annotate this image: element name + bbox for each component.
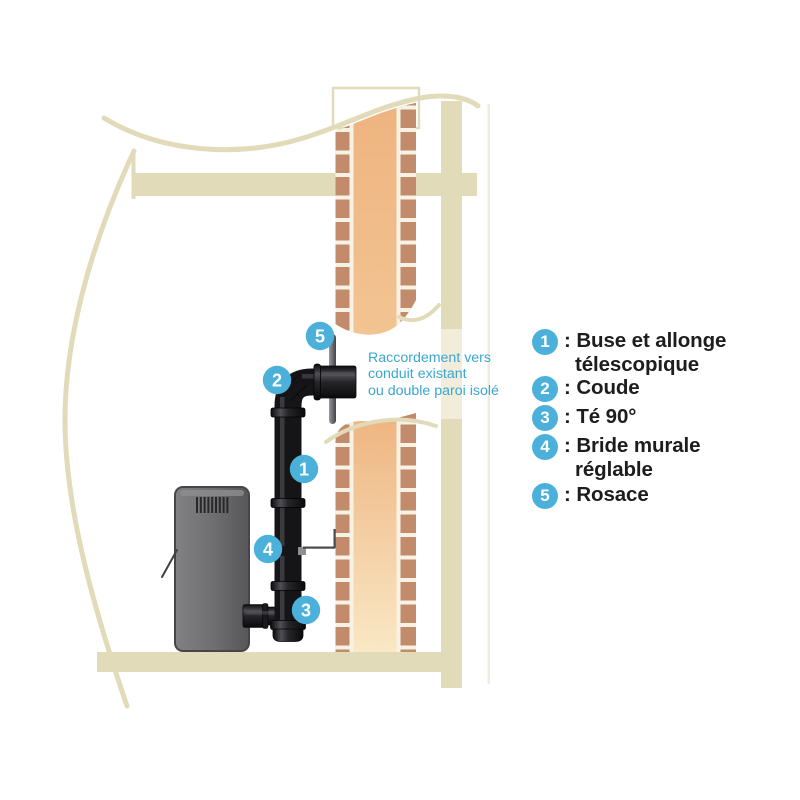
legend-item-buse: 1 : Buse et allonge télescopique xyxy=(532,329,726,377)
legend-label-line1: : Coude xyxy=(564,376,640,400)
legend-label-line1: : Bride murale xyxy=(564,434,700,458)
mortar-line xyxy=(397,95,401,335)
legend-label: : Té 90° xyxy=(564,405,636,429)
pellet-stove xyxy=(162,487,249,651)
legend-label-line1: : Rosace xyxy=(564,483,649,507)
annotation-text: Raccordement vers conduit existant ou do… xyxy=(368,350,518,399)
legend-item-coude: 2 : Coude xyxy=(532,376,640,402)
stove-branch-ring xyxy=(263,604,269,629)
mortar-rows xyxy=(336,95,350,335)
annotation-line-1: Raccordement vers xyxy=(368,350,518,366)
legend-label-line1: : Té 90° xyxy=(564,405,636,429)
left-wall-line xyxy=(65,151,134,706)
legend-label-line2: télescopique xyxy=(564,353,726,377)
bracket-rod xyxy=(303,547,335,549)
floor xyxy=(97,652,462,672)
mortar-line xyxy=(397,410,401,652)
callout-5-number: 5 xyxy=(315,326,325,346)
legend-item-rosace: 5 : Rosace xyxy=(532,483,649,509)
chimney-upper-section xyxy=(336,95,417,335)
telescopic-sleeve xyxy=(317,366,356,398)
pipe-collar xyxy=(271,582,305,591)
legend-badge-number: 4 xyxy=(540,437,549,457)
bracket-wall-pin xyxy=(334,529,336,548)
legend: 1 : Buse et allonge télescopique 2 : Cou… xyxy=(530,0,790,800)
mortar-line xyxy=(350,410,354,652)
callout-3-number: 3 xyxy=(301,600,311,620)
right-wall-band-top xyxy=(441,101,462,329)
callout-4-number: 4 xyxy=(263,539,273,559)
legend-badge-2: 2 xyxy=(532,376,558,402)
right-wall-band-bottom xyxy=(441,419,462,688)
pipe-collar xyxy=(271,408,305,417)
sleeve-ring xyxy=(314,364,321,400)
legend-label-line1: : Buse et allonge xyxy=(564,329,726,353)
legend-badge-3: 3 xyxy=(532,405,558,431)
legend-badge-5: 5 xyxy=(532,483,558,509)
installation-diagram-page: 1 2 3 4 5 Raccordement vers conduit exis… xyxy=(0,0,800,800)
mortar-rows xyxy=(401,95,417,335)
legend-label: : Buse et allonge télescopique xyxy=(564,329,726,377)
ceiling-beam xyxy=(133,173,477,196)
ceiling-line xyxy=(104,96,478,150)
mortar-rows xyxy=(336,410,350,652)
legend-item-te90: 3 : Té 90° xyxy=(532,405,636,431)
legend-badge-number: 1 xyxy=(540,332,549,352)
chimney-lower-section xyxy=(336,410,417,652)
legend-label: : Rosace xyxy=(564,483,649,507)
legend-label: : Bride murale réglable xyxy=(564,434,700,482)
annotation-line-2: conduit existant xyxy=(368,366,518,382)
legend-badge-1: 1 xyxy=(532,329,558,355)
legend-badge-number: 3 xyxy=(540,408,549,428)
legend-badge-4: 4 xyxy=(532,434,558,460)
legend-label: : Coude xyxy=(564,376,640,400)
sleeve-highlight xyxy=(322,372,354,376)
legend-label-line2: réglable xyxy=(564,458,700,482)
annotation-line-3: ou double paroi isolé xyxy=(368,383,518,399)
mortar-rows xyxy=(401,410,417,652)
tee-cap xyxy=(273,629,303,642)
stove-top-highlight xyxy=(180,490,244,496)
pipe-collar xyxy=(271,499,305,508)
callout-1-number: 1 xyxy=(299,459,309,479)
stove-vents xyxy=(196,497,228,513)
mortar-line xyxy=(350,95,354,335)
callout-2-number: 2 xyxy=(272,370,282,390)
legend-item-bride: 4 : Bride murale réglable xyxy=(532,434,700,482)
legend-badge-number: 2 xyxy=(540,379,549,399)
legend-badge-number: 5 xyxy=(540,486,549,506)
stove-branch-sleeve xyxy=(243,605,265,628)
